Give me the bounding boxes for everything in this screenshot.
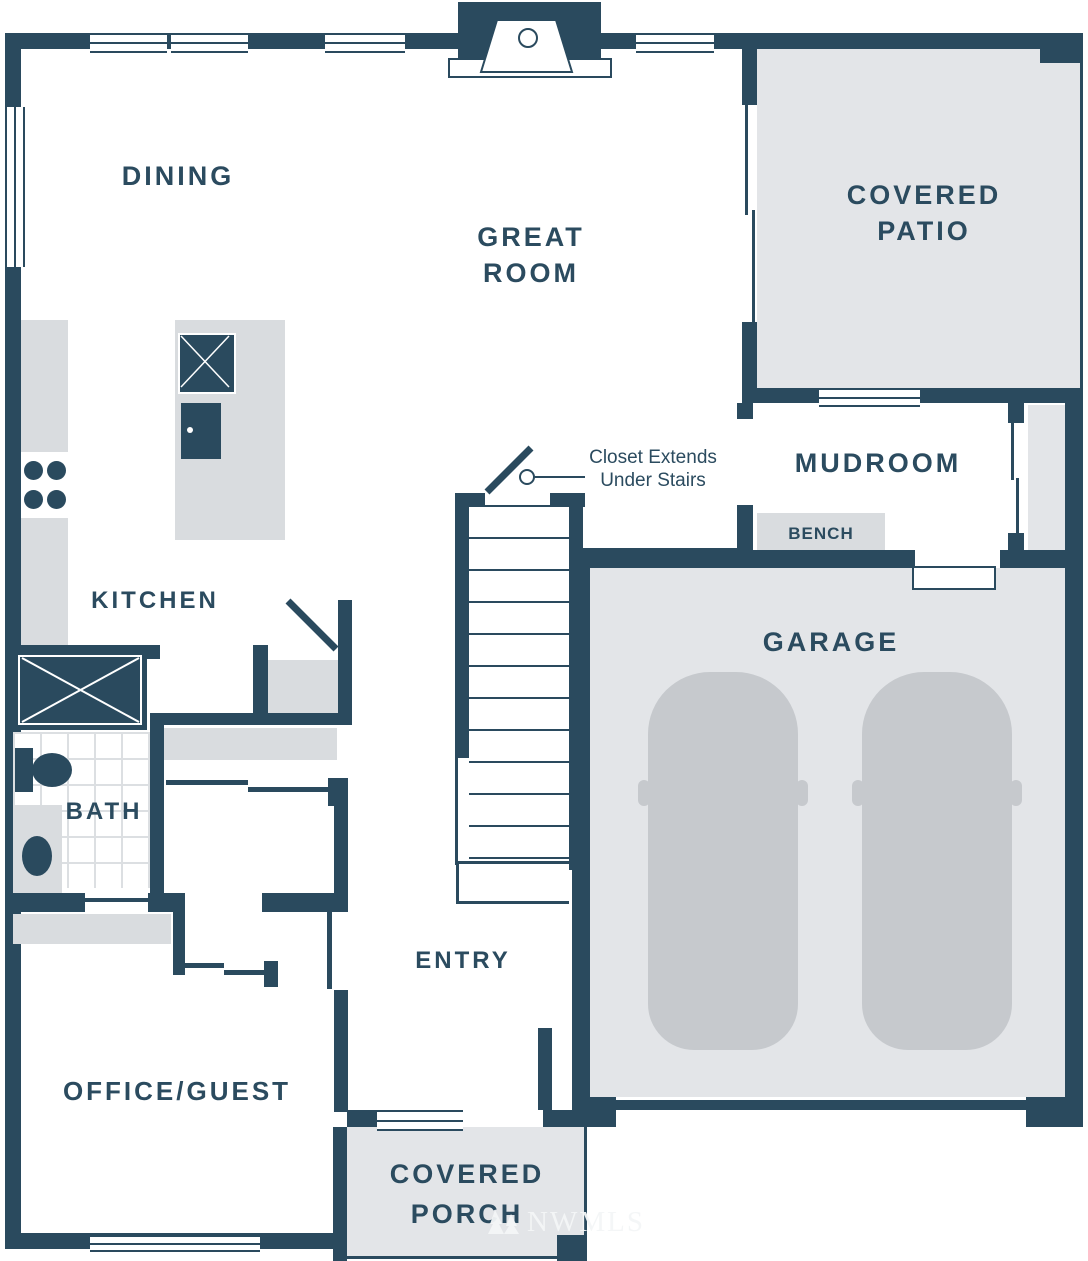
bypass-door xyxy=(248,787,328,792)
wall xyxy=(334,990,348,1112)
fireplace xyxy=(458,2,601,60)
annotation-leader-line xyxy=(534,476,585,478)
room-label-mudroom: MUDROOM xyxy=(795,445,961,481)
wall xyxy=(262,893,348,912)
closet-shelf xyxy=(162,728,337,760)
porch-edge xyxy=(347,1256,587,1259)
wall xyxy=(150,725,164,893)
great-room-line1: GREAT xyxy=(477,219,585,255)
burner-icon xyxy=(47,461,66,480)
closet-annotation-line2: Under Stairs xyxy=(589,469,717,492)
stair-edge xyxy=(456,901,569,904)
room-label-entry: ENTRY xyxy=(415,943,510,979)
wall xyxy=(742,322,757,388)
toilet-tank xyxy=(15,748,33,792)
wall xyxy=(5,893,85,912)
wall xyxy=(405,33,460,49)
wall xyxy=(264,961,278,987)
annotation-bullet-icon xyxy=(520,470,534,484)
pocket-door xyxy=(85,898,148,902)
window xyxy=(90,1235,260,1252)
car-mirror-icon xyxy=(796,780,808,806)
wall xyxy=(248,33,325,49)
window xyxy=(325,33,405,53)
wall xyxy=(5,33,21,107)
wall xyxy=(347,1110,377,1127)
closet-annotation-line1: Closet Extends xyxy=(589,446,717,469)
cooktop xyxy=(21,452,68,518)
bypass-door xyxy=(166,780,248,785)
wall xyxy=(737,403,753,419)
covered-porch-line1: COVERED xyxy=(390,1154,545,1194)
garage-door-threshold xyxy=(912,566,996,590)
wall xyxy=(920,388,1067,403)
wall xyxy=(338,600,352,725)
shower-pan xyxy=(18,655,142,725)
pantry-door-leaf xyxy=(288,601,336,649)
closet-door-leaf xyxy=(487,448,531,492)
room-label-kitchen: KITCHEN xyxy=(91,583,219,619)
sliding-glass-door xyxy=(752,210,755,322)
wall xyxy=(333,1127,347,1261)
toilet xyxy=(32,753,72,787)
wall xyxy=(334,778,348,912)
closet-shelf xyxy=(13,914,171,944)
window xyxy=(171,33,248,53)
wall xyxy=(757,33,1083,49)
car-icon xyxy=(648,672,798,1050)
wall xyxy=(569,493,583,870)
great-room-line2: ROOM xyxy=(477,255,585,291)
window xyxy=(819,388,920,407)
front-door-sidelite xyxy=(377,1110,463,1131)
sliding-glass-door xyxy=(745,105,748,215)
window xyxy=(90,33,167,53)
sliding-door xyxy=(1011,423,1014,480)
car-mirror-icon xyxy=(1010,780,1022,806)
covered-patio-line1: COVERED xyxy=(847,177,1002,213)
wall xyxy=(1000,550,1083,568)
wall xyxy=(1065,388,1083,1112)
patio-edge xyxy=(1080,49,1083,388)
stair-rail xyxy=(455,758,458,865)
staircase xyxy=(469,505,569,861)
stair-edge xyxy=(456,861,569,864)
wall xyxy=(742,388,819,403)
sliding-door xyxy=(1016,478,1019,535)
wall xyxy=(538,1028,552,1110)
bypass-door xyxy=(224,970,264,975)
window xyxy=(5,107,25,267)
wall xyxy=(1026,1097,1083,1127)
label-bench: BENCH xyxy=(788,516,853,552)
fireplace-hearth xyxy=(448,58,612,78)
floor-plan: DINING GREAT ROOM COVERED PATIO MUDROOM … xyxy=(0,0,1088,1261)
dishwasher xyxy=(181,403,221,459)
wall xyxy=(583,548,737,566)
car-icon xyxy=(862,672,1012,1050)
room-label-garage: GARAGE xyxy=(763,624,900,660)
car-mirror-icon xyxy=(852,780,864,806)
wall xyxy=(742,49,757,105)
window xyxy=(636,33,714,53)
garage-door xyxy=(616,1100,1026,1110)
wall xyxy=(572,1097,616,1127)
vanity-sink xyxy=(22,836,52,876)
burner-icon xyxy=(24,490,43,509)
wall xyxy=(543,1110,572,1127)
room-label-great-room: GREAT ROOM xyxy=(477,219,585,291)
patio-corner-post xyxy=(1040,33,1083,63)
watermark: NWMLS xyxy=(487,1206,645,1239)
stair-edge xyxy=(456,864,459,904)
nwmls-logo-icon xyxy=(487,1208,521,1238)
wall xyxy=(600,33,636,49)
car-mirror-icon xyxy=(638,780,650,806)
burner-icon xyxy=(24,461,43,480)
mudroom-stoop xyxy=(1028,405,1065,552)
room-label-bath: BATH xyxy=(66,794,143,830)
handle-dot-icon xyxy=(187,427,193,433)
shower xyxy=(13,650,147,730)
wall xyxy=(455,493,469,758)
island-sink xyxy=(178,333,236,394)
bypass-door xyxy=(185,963,224,968)
wall xyxy=(1008,403,1024,423)
room-label-covered-patio: COVERED PATIO xyxy=(847,177,1002,249)
wall xyxy=(150,713,352,725)
room-label-office-guest: OFFICE/GUEST xyxy=(63,1073,291,1109)
wall xyxy=(173,893,185,975)
wall xyxy=(714,33,757,49)
closet-annotation: Closet Extends Under Stairs xyxy=(589,446,717,492)
burner-icon xyxy=(47,490,66,509)
watermark-text: NWMLS xyxy=(527,1206,645,1239)
covered-patio-line2: PATIO xyxy=(847,213,1002,249)
office-door-leaf xyxy=(327,912,332,989)
room-label-dining: DINING xyxy=(122,158,235,194)
wall xyxy=(737,505,753,553)
